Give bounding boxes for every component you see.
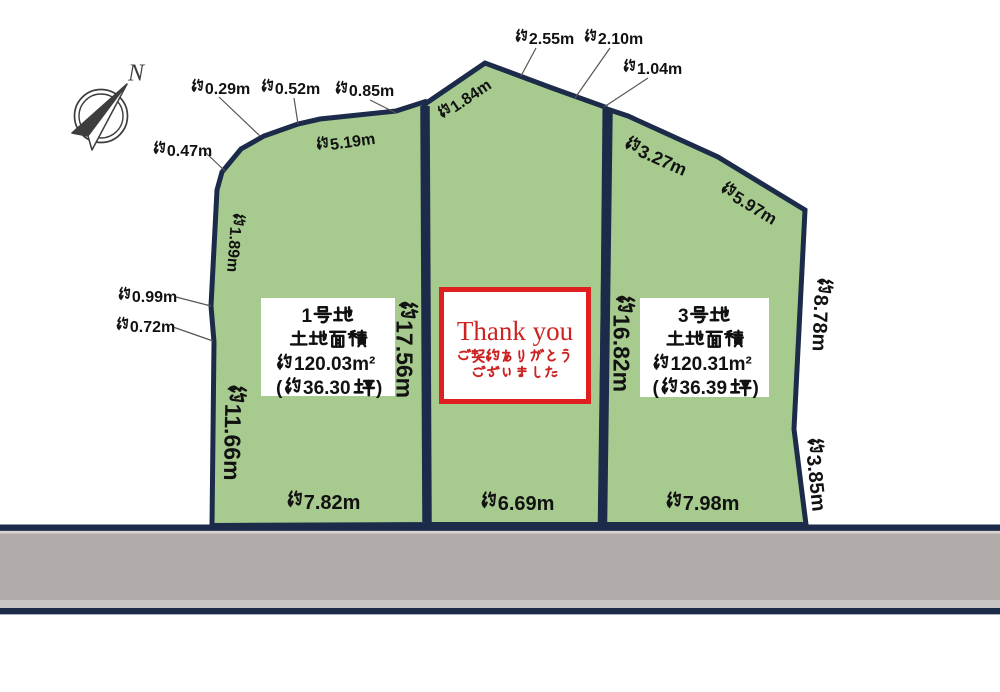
svg-text:7.82m: 7.82m: [304, 492, 361, 514]
svg-text:16.82m: 16.82m: [609, 314, 635, 392]
svg-text:(: (: [653, 378, 660, 399]
svg-text:Thank you: Thank you: [457, 316, 574, 346]
svg-text:36.30: 36.30: [303, 378, 351, 399]
svg-text:0.85m: 0.85m: [349, 83, 394, 100]
svg-text:1: 1: [302, 306, 313, 327]
svg-text:17.56m: 17.56m: [392, 320, 418, 398]
svg-text:): ): [376, 378, 382, 399]
svg-text:6.69m: 6.69m: [498, 493, 555, 515]
svg-text:3: 3: [678, 306, 689, 327]
svg-text:N: N: [127, 61, 146, 87]
svg-text:8.78m: 8.78m: [808, 294, 832, 351]
svg-text:0.29m: 0.29m: [205, 81, 250, 98]
svg-text:1.04m: 1.04m: [637, 61, 682, 78]
svg-text:36.39: 36.39: [680, 378, 728, 399]
svg-text:2.10m: 2.10m: [598, 31, 643, 48]
svg-text:0.99m: 0.99m: [132, 289, 177, 306]
svg-text:2.55m: 2.55m: [529, 31, 574, 48]
svg-text:(: (: [276, 378, 283, 399]
svg-text:120.03m²: 120.03m²: [294, 354, 375, 375]
svg-text:11.66m: 11.66m: [219, 404, 246, 481]
svg-text:0.72m: 0.72m: [130, 319, 175, 336]
svg-text:): ): [753, 378, 759, 399]
svg-text:120.31m²: 120.31m²: [671, 354, 752, 375]
svg-text:7.98m: 7.98m: [683, 493, 740, 515]
svg-text:1.89m: 1.89m: [223, 226, 243, 272]
svg-text:0.47m: 0.47m: [167, 143, 212, 160]
svg-text:0.52m: 0.52m: [275, 81, 320, 98]
